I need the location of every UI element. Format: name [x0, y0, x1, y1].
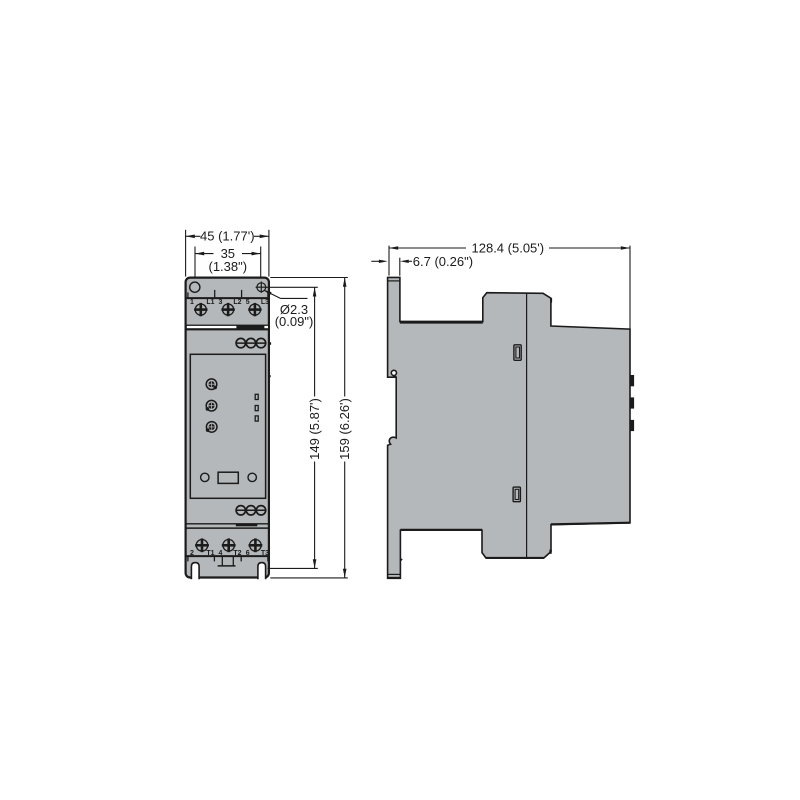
svg-text:L3: L3: [261, 299, 269, 306]
svg-text:159 (6.26'): 159 (6.26'): [337, 398, 352, 460]
svg-text:128.4 (5.05'): 128.4 (5.05'): [472, 240, 545, 255]
svg-text:5: 5: [246, 299, 250, 306]
svg-text:(0.09"): (0.09"): [275, 314, 314, 329]
svg-text:L1: L1: [206, 299, 214, 306]
svg-text:45 (1.77'): 45 (1.77'): [200, 229, 255, 244]
svg-text:3: 3: [219, 299, 223, 306]
svg-text:(1.38"): (1.38"): [209, 259, 248, 274]
svg-text:L2: L2: [233, 299, 241, 306]
svg-text:6.7 (0.26"): 6.7 (0.26"): [413, 254, 473, 269]
svg-text:149 (5.87'): 149 (5.87'): [307, 398, 322, 460]
svg-text:1: 1: [190, 299, 194, 306]
